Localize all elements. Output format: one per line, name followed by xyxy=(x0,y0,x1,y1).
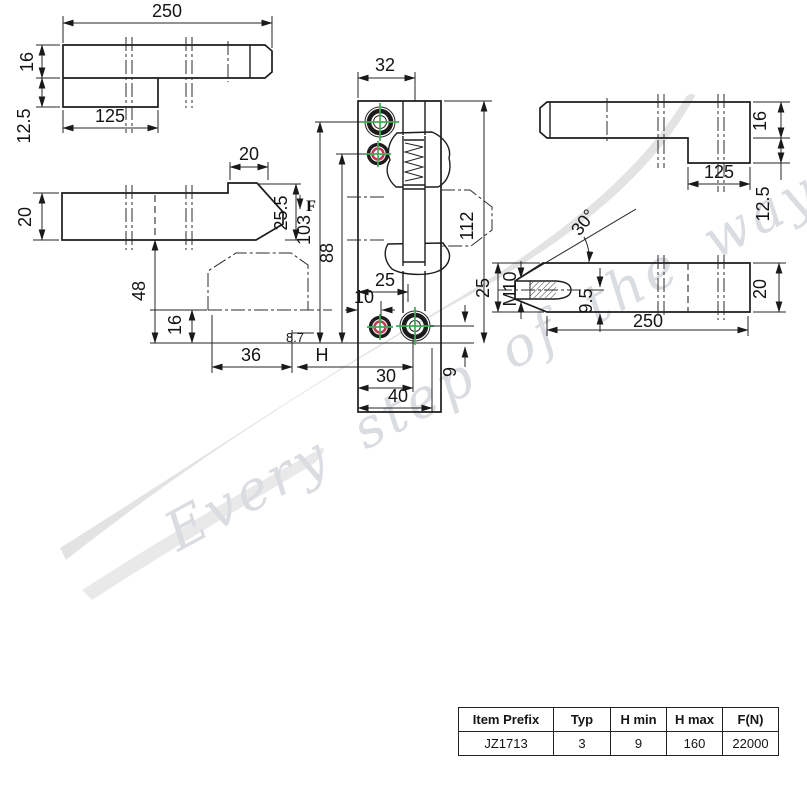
dim-label: 88 xyxy=(317,243,337,263)
dim-label: 125 xyxy=(704,162,734,182)
dim-label: 16 xyxy=(165,315,185,335)
dim-label: 25 xyxy=(473,278,493,298)
cell-item-prefix: JZ1713 xyxy=(459,732,554,756)
col-typ: Typ xyxy=(554,708,611,732)
col-item-prefix: Item Prefix xyxy=(459,708,554,732)
dim-label: 9.5 xyxy=(576,288,596,313)
dim-label: 25 xyxy=(375,270,395,290)
hole-bottom-small xyxy=(367,314,393,340)
technical-drawing: Every step of the way 250 16 12.5 125 xyxy=(0,0,807,787)
cell-h-min: 9 xyxy=(611,732,667,756)
dim-label: 250 xyxy=(633,311,663,331)
spring-channel xyxy=(403,136,425,266)
col-f-n: F(N) xyxy=(723,708,779,732)
travel-label: H xyxy=(316,345,329,365)
col-h-max: H max xyxy=(667,708,723,732)
angle-arc xyxy=(584,237,589,262)
thread-label: M10 xyxy=(500,271,520,306)
dim-label: 16 xyxy=(17,52,37,72)
dim-label: 103 xyxy=(294,215,314,245)
dim-label: 20 xyxy=(750,279,770,299)
dim-label: 36 xyxy=(241,345,261,365)
dim-label: 8.7 xyxy=(286,330,304,345)
dim-label: 25.5 xyxy=(271,195,291,230)
col-h-min: H min xyxy=(611,708,667,732)
dim-label: 12.5 xyxy=(753,186,773,221)
bar-outline xyxy=(63,45,272,107)
view-bar-top-right: 16 12.5 125 xyxy=(540,94,790,222)
view-bar-top-left: 250 16 12.5 125 xyxy=(14,1,272,144)
dim-label: 16 xyxy=(750,111,770,131)
hole-top-small xyxy=(365,141,391,167)
cell-typ: 3 xyxy=(554,732,611,756)
keeper-phantom-outline xyxy=(208,253,308,310)
dim-label: 32 xyxy=(375,55,395,75)
dim-label: 10 xyxy=(354,287,374,307)
watermark: Every step of the way xyxy=(60,94,807,600)
dim-label: 30 xyxy=(376,366,396,386)
hole-top-large xyxy=(361,103,399,141)
dim-label: 40 xyxy=(388,386,408,406)
dim-label: 20 xyxy=(15,207,35,227)
dim-label: 9 xyxy=(440,367,460,377)
dim-label: 250 xyxy=(152,1,182,21)
dim-label: 48 xyxy=(129,281,149,301)
dim-label: 12.5 xyxy=(14,108,34,143)
drawing-page: Every step of the way 250 16 12.5 125 xyxy=(0,0,807,787)
cell-h-max: 160 xyxy=(667,732,723,756)
dim-label: 125 xyxy=(95,106,125,126)
dim-label: 112 xyxy=(457,212,477,241)
hole-bottom-large xyxy=(396,307,434,345)
spec-table: Item Prefix Typ H min H max F(N) JZ1713 … xyxy=(458,707,779,756)
arm-outline xyxy=(62,183,283,240)
spec-table-data-row: JZ1713 3 9 160 22000 xyxy=(459,732,779,756)
cell-f-n: 22000 xyxy=(723,732,779,756)
spec-table-header-row: Item Prefix Typ H min H max F(N) xyxy=(459,708,779,732)
dim-label: 20 xyxy=(239,144,259,164)
force-label: F xyxy=(306,198,316,215)
